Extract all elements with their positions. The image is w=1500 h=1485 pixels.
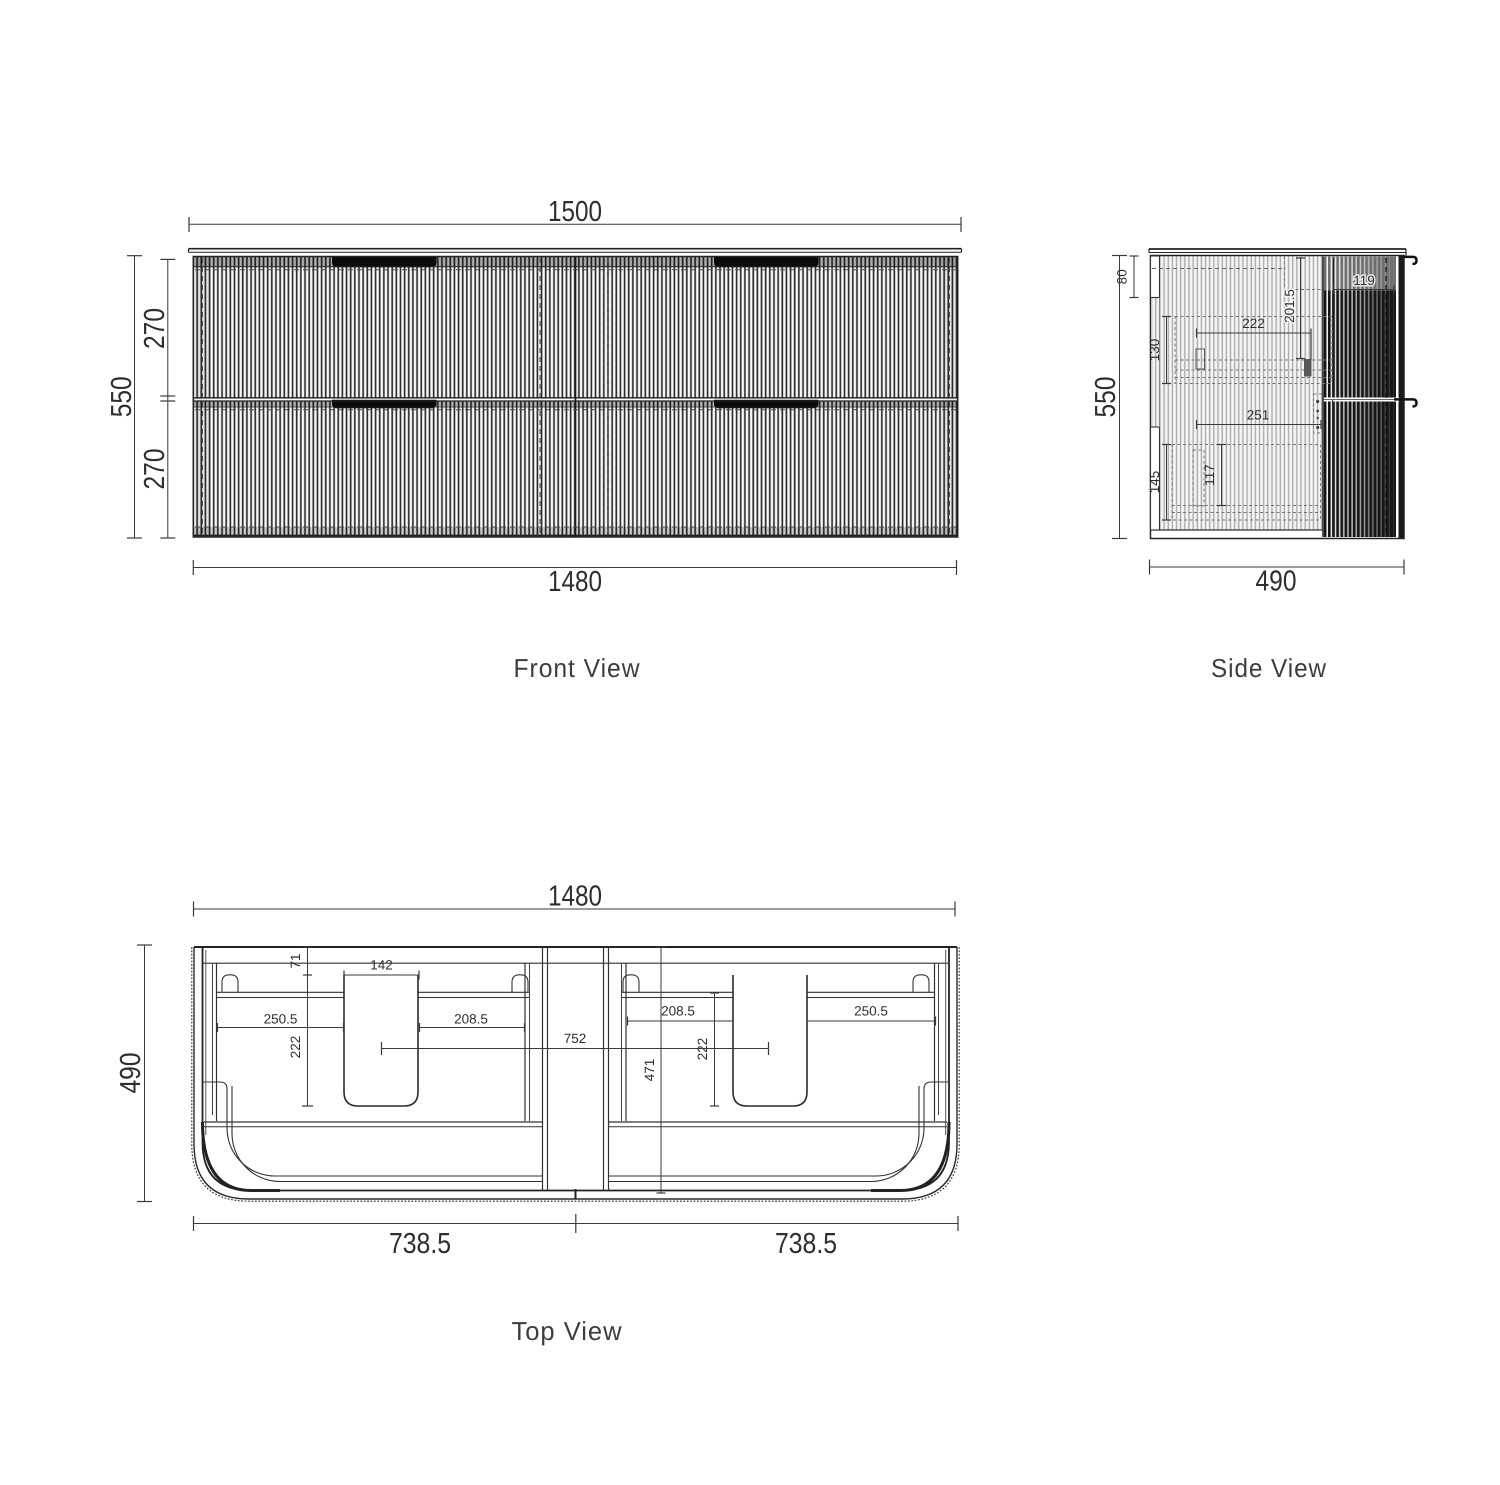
svg-text:142: 142: [370, 958, 393, 973]
svg-text:738.5: 738.5: [775, 1228, 837, 1260]
svg-text:550: 550: [1090, 377, 1122, 418]
svg-text:71: 71: [288, 953, 303, 968]
svg-text:208.5: 208.5: [454, 1012, 488, 1027]
svg-text:117: 117: [1202, 464, 1217, 486]
svg-text:1480: 1480: [548, 566, 602, 598]
svg-text:222: 222: [288, 1036, 303, 1059]
svg-text:738.5: 738.5: [389, 1228, 451, 1260]
svg-text:752: 752: [564, 1031, 587, 1046]
svg-text:550: 550: [106, 376, 138, 417]
svg-text:119: 119: [1353, 273, 1375, 288]
svg-text:251: 251: [1247, 408, 1270, 423]
svg-text:471: 471: [642, 1059, 657, 1082]
svg-text:1480: 1480: [548, 881, 602, 913]
svg-text:145: 145: [1147, 471, 1162, 494]
svg-text:Top View: Top View: [512, 1316, 623, 1346]
svg-text:250.5: 250.5: [264, 1012, 298, 1027]
svg-text:201.5: 201.5: [1282, 289, 1297, 323]
svg-text:Side View: Side View: [1211, 653, 1327, 683]
svg-text:130: 130: [1147, 339, 1162, 362]
svg-text:Front View: Front View: [514, 653, 641, 683]
svg-text:222: 222: [1242, 316, 1265, 331]
svg-text:270: 270: [139, 449, 171, 490]
svg-text:80: 80: [1115, 269, 1130, 284]
svg-text:270: 270: [139, 308, 171, 349]
svg-text:490: 490: [115, 1053, 147, 1094]
svg-text:208.5: 208.5: [661, 1004, 695, 1019]
svg-text:250.5: 250.5: [854, 1004, 888, 1019]
svg-text:1500: 1500: [548, 196, 602, 228]
svg-text:490: 490: [1256, 566, 1297, 598]
